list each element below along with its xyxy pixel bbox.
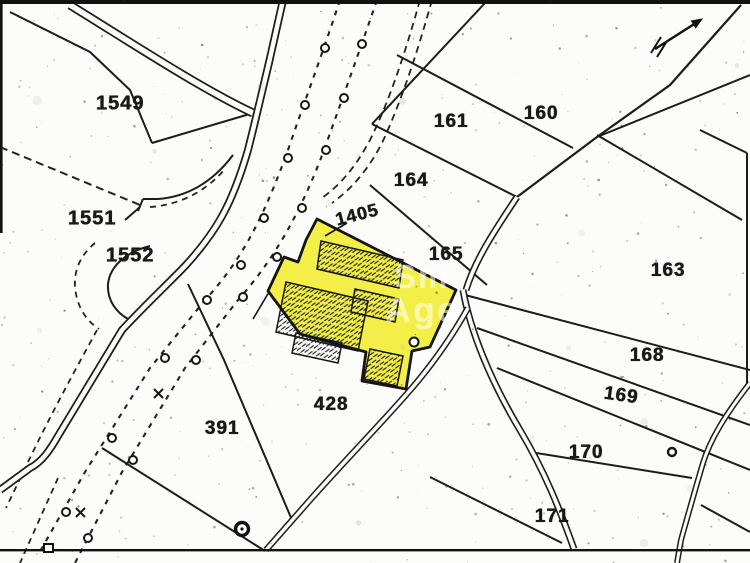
cadastral-map: 1549155115521405161160164165163168169170… <box>0 0 750 563</box>
left-border <box>0 0 3 233</box>
well-symbol <box>236 523 249 536</box>
access-point-circle <box>410 338 419 347</box>
border-tick-square <box>44 544 53 552</box>
cross-marks <box>76 389 163 517</box>
top-border <box>0 0 750 4</box>
parcel-circle-marker <box>668 448 676 456</box>
bottom-border <box>0 549 750 551</box>
map-linework <box>0 0 750 563</box>
highlighted-plot-1405 <box>253 219 456 389</box>
pointer-line-west <box>253 292 269 319</box>
north-arrow <box>651 19 702 57</box>
